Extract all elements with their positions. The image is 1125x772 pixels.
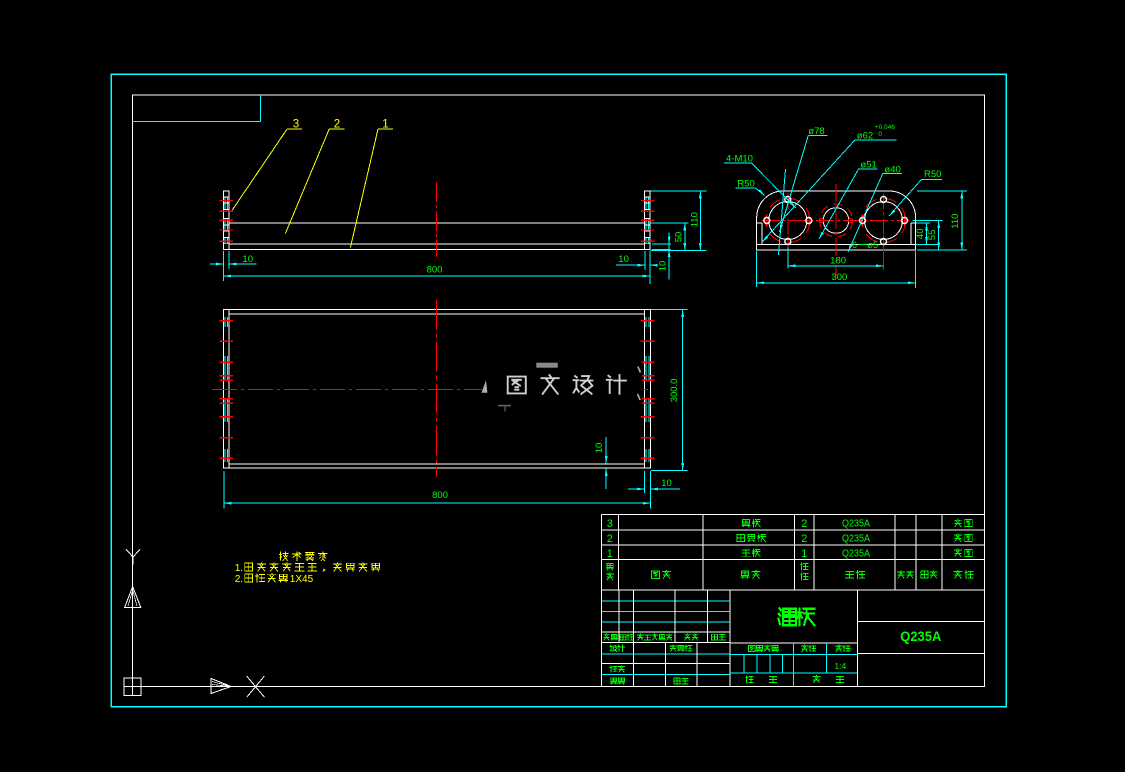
svg-text:800: 800 (427, 264, 443, 275)
svg-text:10: 10 (242, 254, 253, 265)
svg-text:3: 3 (607, 518, 613, 530)
svg-text:Q235A: Q235A (842, 548, 870, 559)
svg-text:0: 0 (878, 131, 882, 138)
svg-text:Q235A: Q235A (842, 533, 870, 544)
svg-text:300: 300 (831, 272, 847, 283)
svg-text:2: 2 (334, 118, 340, 130)
svg-text:10: 10 (661, 478, 672, 489)
svg-text:2: 2 (607, 533, 613, 545)
svg-text:110: 110 (689, 212, 700, 227)
svg-text:10: 10 (594, 443, 605, 454)
svg-text:180: 180 (830, 255, 846, 266)
svg-text:1: 1 (801, 548, 807, 560)
svg-text:1: 1 (382, 118, 388, 130)
svg-text:40: 40 (915, 229, 926, 240)
svg-text:2.: 2. (235, 574, 243, 585)
svg-text:110: 110 (950, 214, 961, 229)
svg-text:55: 55 (927, 230, 938, 241)
svg-text:10: 10 (657, 261, 668, 272)
svg-text:ø5: ø5 (868, 240, 879, 250)
svg-text:2: 2 (801, 518, 807, 530)
svg-text:1X45: 1X45 (290, 574, 314, 585)
svg-text:Q235A: Q235A (900, 628, 941, 644)
svg-text:50: 50 (674, 232, 685, 243)
svg-text:Q235A: Q235A (842, 519, 870, 530)
svg-text:300.0: 300.0 (669, 379, 680, 403)
svg-text:10: 10 (618, 254, 629, 265)
svg-text:1.: 1. (235, 563, 243, 574)
svg-text:R50: R50 (924, 169, 941, 180)
svg-text:800: 800 (432, 490, 448, 501)
svg-text:1:4: 1:4 (834, 661, 846, 671)
svg-text:3: 3 (293, 118, 299, 130)
svg-text:2: 2 (801, 533, 807, 545)
svg-text:1: 1 (607, 548, 613, 560)
